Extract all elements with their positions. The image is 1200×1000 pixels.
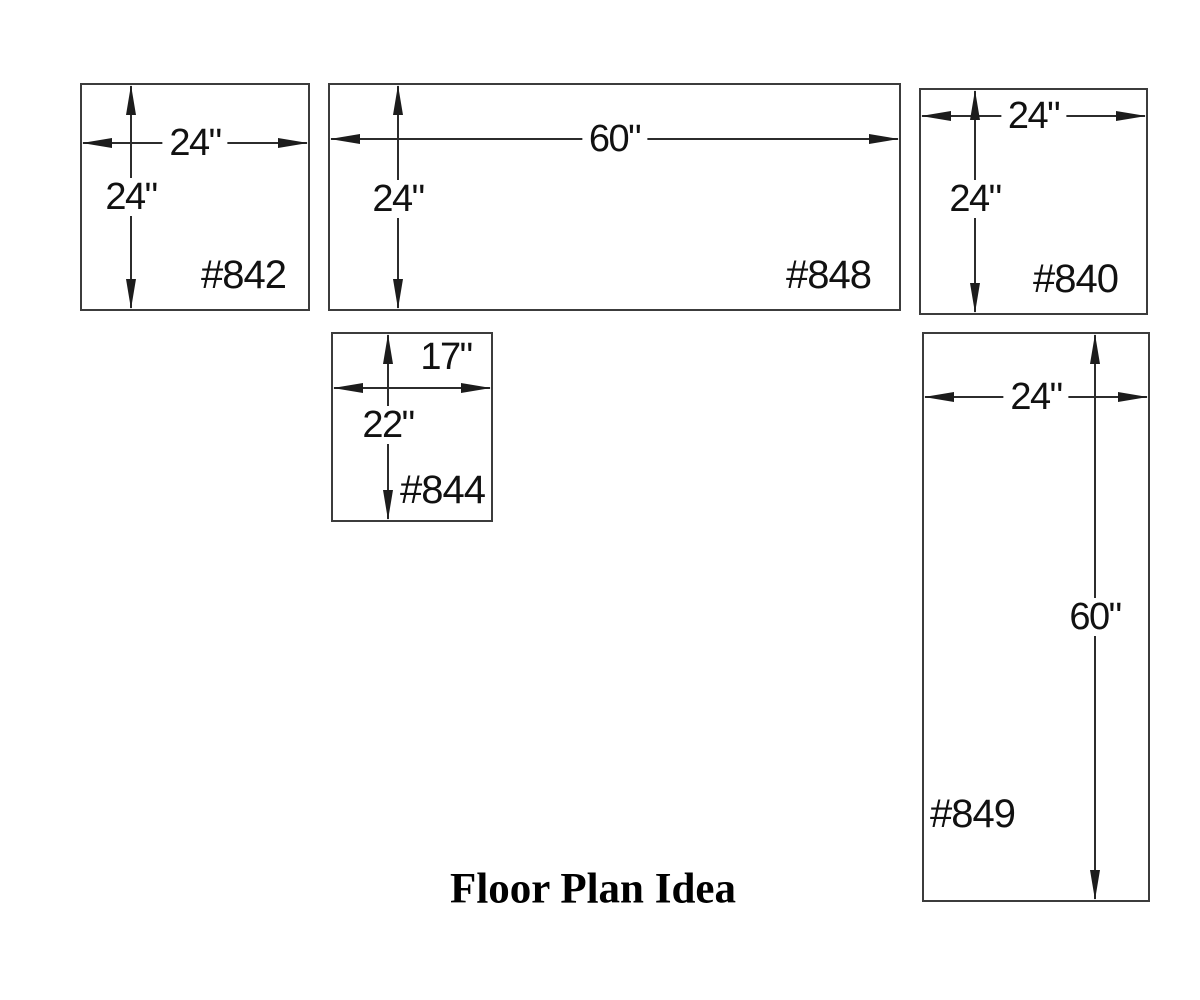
arrowhead-up-icon (383, 334, 393, 364)
arrowhead-right-icon (1116, 111, 1146, 121)
arrowhead-right-icon (1118, 392, 1148, 402)
width-dim-label: 17" (413, 338, 478, 376)
width-dim-label: 24" (1001, 97, 1066, 135)
arrowhead-left-icon (921, 111, 951, 121)
cabinet-number-label: #840 (1033, 259, 1118, 299)
arrowhead-right-icon (869, 134, 899, 144)
arrowhead-down-icon (970, 283, 980, 313)
arrowhead-down-icon (383, 490, 393, 520)
arrowhead-left-icon (82, 138, 112, 148)
diagram-title: Floor Plan Idea (450, 865, 736, 914)
arrowhead-right-icon (278, 138, 308, 148)
cabinet-number-label: #849 (930, 794, 1015, 834)
arrowhead-left-icon (924, 392, 954, 402)
cabinet-844-outline: 17" 22" #844 (331, 332, 493, 522)
width-dim-label: 60" (582, 120, 647, 158)
height-dim-label: 24" (365, 180, 430, 218)
cabinet-number-label: #848 (786, 255, 871, 295)
cabinet-848-outline: 60" 24" #848 (328, 83, 901, 311)
arrowhead-left-icon (330, 134, 360, 144)
height-dim-label: 22" (355, 406, 420, 444)
cabinet-840-outline: 24" 24" #840 (919, 88, 1148, 315)
floor-plan-canvas: 24" 24" #842 60" 24" #848 (0, 0, 1200, 1000)
width-dim-label: 24" (1003, 378, 1068, 416)
arrowhead-down-icon (126, 279, 136, 309)
arrowhead-up-icon (126, 85, 136, 115)
cabinet-number-label: #844 (400, 470, 485, 510)
cabinet-849-outline: 24" 60" #849 (922, 332, 1150, 902)
arrowhead-down-icon (1090, 870, 1100, 900)
width-dim-label: 24" (162, 124, 227, 162)
arrowhead-up-icon (393, 85, 403, 115)
cabinet-842-outline: 24" 24" #842 (80, 83, 310, 311)
cabinet-number-label: #842 (201, 255, 286, 295)
height-dim-label: 24" (942, 180, 1007, 218)
height-dim-label: 24" (98, 178, 163, 216)
arrowhead-down-icon (393, 279, 403, 309)
height-dim-label: 60" (1062, 598, 1127, 636)
arrowhead-up-icon (1090, 334, 1100, 364)
arrowhead-up-icon (970, 90, 980, 120)
arrowhead-right-icon (461, 383, 491, 393)
arrowhead-left-icon (333, 383, 363, 393)
